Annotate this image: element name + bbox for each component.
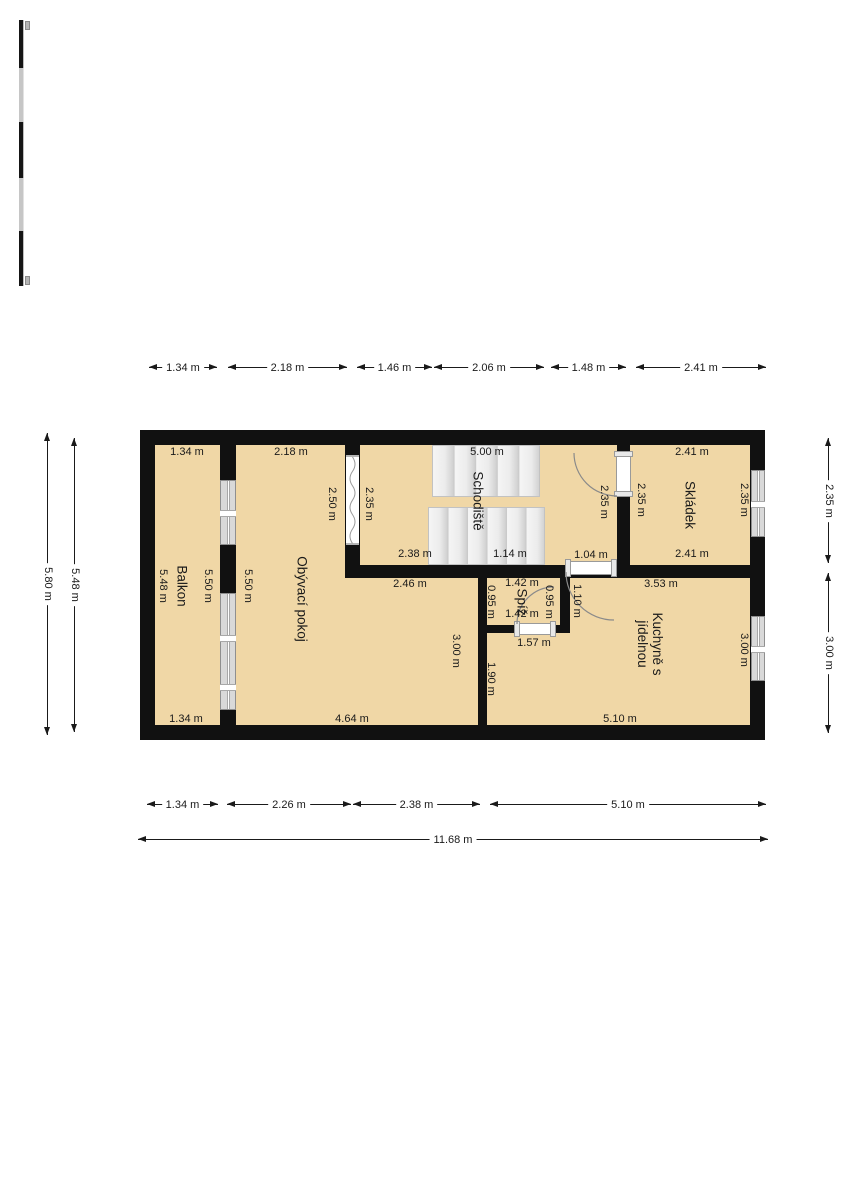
obyvaci-dim-upper-right: 2.46 m xyxy=(393,578,427,590)
wall-fragment-segment xyxy=(19,231,24,286)
schodiste-dim-door: 1.04 m xyxy=(574,549,608,561)
dimension-label: 2.26 m xyxy=(268,799,310,811)
room-label-schodiste: Schodiště xyxy=(470,471,485,530)
dimension-label: 1.46 m xyxy=(374,362,416,374)
dimension-label: 1.48 m xyxy=(568,362,610,374)
dimension-label: 2.41 m xyxy=(680,362,722,374)
schodiste-dim-left: 2.35 m xyxy=(363,487,375,521)
balkon-dim-left: 5.48 m xyxy=(157,569,169,603)
kuchyne-label-line1: Kuchyně s xyxy=(649,612,664,675)
kuchyne-dim-bottom: 5.10 m xyxy=(603,713,637,725)
obyvaci-dim-right-upper: 2.50 m xyxy=(326,487,338,521)
wall-fragment xyxy=(19,20,31,286)
dimension-arrow-top-1: 1.34 m xyxy=(149,367,217,368)
spiz-dim-left: 0.95 m xyxy=(485,585,497,619)
door-kuchyne xyxy=(566,561,616,575)
dimension-arrow-top-3: 1.46 m xyxy=(357,367,432,368)
kuchyne-dim-right: 3.00 m xyxy=(738,633,750,667)
spiz-dim-below: 1.57 m xyxy=(517,637,551,649)
dimension-label: 11.68 m xyxy=(430,834,477,846)
balkon-dim-bottom: 1.34 m xyxy=(169,713,203,725)
skladek-dim-right: 2.35 m xyxy=(738,483,750,517)
schodiste-dim-right: 2.35 m xyxy=(598,485,610,519)
stairs-lower-flight xyxy=(428,507,545,565)
dimension-arrow-top-2: 2.18 m xyxy=(228,367,347,368)
dimension-label: 5.48 m xyxy=(69,564,81,606)
wall-fragment-window xyxy=(19,178,24,231)
obyvaci-dim-right-lower: 3.00 m xyxy=(450,634,462,668)
dimension-arrow-bottom-1: 1.34 m xyxy=(147,804,218,805)
wall-fragment-segment xyxy=(19,122,24,178)
window-kuchyne xyxy=(751,616,765,681)
dimension-arrow-bottom-4: 5.10 m xyxy=(490,804,766,805)
room-label-balkon: Balkon xyxy=(174,565,189,606)
spiz-dim-right: 0.95 m xyxy=(543,585,555,619)
room-label-kuchyne: Kuchyně s jídelnou xyxy=(634,612,664,675)
spiz-dim-top: 1.42 m xyxy=(505,577,539,589)
balkon-dim-right: 5.50 m xyxy=(202,569,214,603)
dimension-label: 3.00 m xyxy=(823,632,835,674)
skladek-dim-top: 2.41 m xyxy=(675,446,709,458)
dimension-label: 2.38 m xyxy=(396,799,438,811)
floorplan-canvas: 1.34 m 2.18 m 1.46 m 2.06 m 1.48 m 2.41 … xyxy=(0,0,848,1200)
schodiste-dim-top: 5.00 m xyxy=(470,446,504,458)
window-mullion xyxy=(220,635,236,642)
window-mullion xyxy=(220,510,236,517)
window-balkon-upper xyxy=(220,480,236,545)
window-skladek xyxy=(751,470,765,537)
dimension-arrow-bottom-total: 11.68 m xyxy=(138,839,768,840)
skladek-dim-bottom: 2.41 m xyxy=(675,548,709,560)
schodiste-dim-bottom-mid: 1.14 m xyxy=(493,548,527,560)
wall-fragment-segment xyxy=(19,20,24,68)
schodiste-dim-bottom-left: 2.38 m xyxy=(398,548,432,560)
window-mullion xyxy=(751,646,765,653)
dimension-arrow-bottom-3: 2.38 m xyxy=(353,804,480,805)
dimension-label: 1.34 m xyxy=(162,362,204,374)
room-label-obyvaci-pokoj: Obývací pokoj xyxy=(294,556,309,642)
dimension-label: 2.06 m xyxy=(468,362,510,374)
obyvaci-dim-top: 2.18 m xyxy=(274,446,308,458)
wall-fragment-window xyxy=(19,68,24,122)
dimension-label: 5.80 m xyxy=(42,563,54,605)
dimension-arrow-left-total: 5.80 m xyxy=(47,433,48,735)
dimension-label: 5.10 m xyxy=(607,799,649,811)
spiz-dim-door: 1.10 m xyxy=(571,584,583,618)
dimension-label: 2.18 m xyxy=(267,362,309,374)
dimension-arrow-right-upper: 2.35 m xyxy=(828,438,829,563)
dimension-arrow-top-4: 2.06 m xyxy=(434,367,544,368)
spiz-dim-bottom: 1.42 m xyxy=(505,608,539,620)
dimension-label: 2.35 m xyxy=(823,480,835,522)
window-mullion xyxy=(220,684,236,691)
kuchyne-dim-left: 1.90 m xyxy=(485,662,497,696)
kuchyne-label-line2: jídelnou xyxy=(634,612,649,675)
outer-wall-left xyxy=(140,430,155,740)
dimension-arrow-bottom-2: 2.26 m xyxy=(227,804,351,805)
window-balkon-lower xyxy=(220,593,236,710)
dimension-arrow-top-5: 1.48 m xyxy=(551,367,626,368)
fragment-end-marker xyxy=(25,21,30,30)
obyvaci-dim-bottom: 4.64 m xyxy=(335,713,369,725)
door-spiz xyxy=(515,623,555,635)
kuchyne-dim-top: 3.53 m xyxy=(644,578,678,590)
room-label-skladek: Skládek xyxy=(682,481,697,529)
dimension-arrow-top-6: 2.41 m xyxy=(636,367,766,368)
dimension-arrow-right-lower: 3.00 m xyxy=(828,573,829,733)
window-mullion xyxy=(751,501,765,508)
dimension-arrow-left-inner: 5.48 m xyxy=(74,438,75,732)
balkon-dim-top: 1.34 m xyxy=(170,446,204,458)
skladek-dim-left: 2.35 m xyxy=(635,483,647,517)
door-skladek xyxy=(616,452,631,496)
wall-middle-horizontal xyxy=(345,565,765,578)
obyvaci-dim-left: 5.50 m xyxy=(242,569,254,603)
wall-opening-zigzag xyxy=(346,455,359,545)
dimension-label: 1.34 m xyxy=(162,799,204,811)
fragment-end-marker xyxy=(25,276,30,285)
